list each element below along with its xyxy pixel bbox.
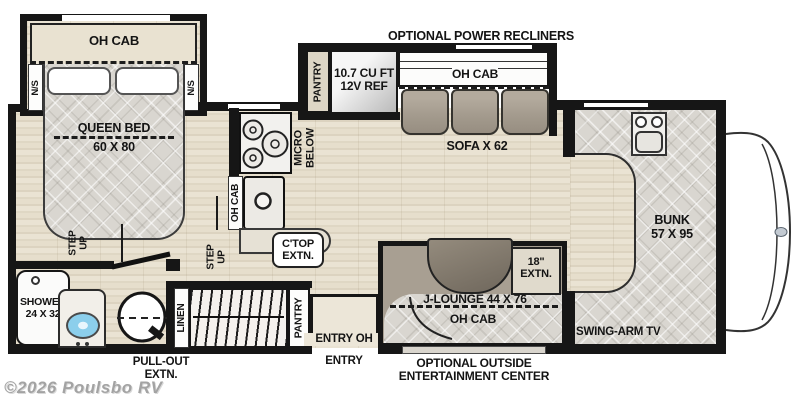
bedroom-step-up-label: STEPUP bbox=[69, 230, 90, 255]
lav-sink bbox=[66, 312, 100, 339]
jlounge-ohcab-label: OH CAB bbox=[428, 313, 518, 326]
micro-below: MICROBELOW bbox=[290, 116, 320, 180]
sofa-slide-left-wall bbox=[298, 43, 306, 116]
slide-pantry-label: PANTRY bbox=[312, 61, 323, 102]
nightstand-left: N/S bbox=[28, 64, 43, 111]
hall-step-up: STEPUP bbox=[204, 230, 230, 284]
cab-brand-badge bbox=[775, 228, 787, 237]
wall-under-fridge bbox=[298, 112, 400, 120]
entry-label: ENTRY bbox=[310, 355, 378, 368]
swing-arm-tv-label: SWING-ARM TV bbox=[576, 326, 670, 339]
wardrobe bbox=[189, 288, 288, 348]
refrigerator-label: 10.7 CU FT12V REF bbox=[330, 67, 398, 94]
range bbox=[239, 112, 292, 174]
sofa-cushion-1 bbox=[401, 89, 449, 135]
sofa-ohcab-label: OH CAB bbox=[452, 68, 498, 81]
queen-bed-label: QUEEN BED bbox=[58, 121, 170, 135]
bunk-label: BUNK57 X 95 bbox=[640, 213, 704, 241]
ctop-extn-label: C'TOPEXTN. bbox=[272, 238, 324, 263]
sofa-slide-right-wall bbox=[549, 43, 557, 136]
sofa-slide-window bbox=[456, 45, 532, 49]
kitchen-divider-wall bbox=[229, 108, 239, 176]
kitchen-ohcab: OH CAB bbox=[228, 176, 243, 230]
sofa-cushion-3 bbox=[501, 89, 549, 135]
linen-closet: LINEN bbox=[174, 288, 189, 348]
cab-hood-inner-line bbox=[762, 144, 777, 320]
linen-label: LINEN bbox=[176, 303, 187, 332]
sofa-label: SOFA X 62 bbox=[432, 139, 522, 153]
nightstand-left-label: N/S bbox=[31, 80, 41, 95]
jlounge-label: J-LOUNGE 44 X 76 bbox=[400, 293, 550, 306]
entry-oh-label: ENTRY OH bbox=[304, 333, 384, 346]
jlounge-extn-label: 18"EXTN. bbox=[511, 256, 561, 281]
nightstand-right-label: N/S bbox=[187, 80, 197, 95]
bed-dashed-line bbox=[54, 136, 174, 139]
outside-entertainment-label: OPTIONAL OUTSIDEENTERTAINMENT CENTER bbox=[384, 357, 564, 384]
front-window bbox=[584, 103, 648, 107]
cab-wall-upper bbox=[563, 100, 575, 157]
hall-pantry-label: PANTRY bbox=[293, 298, 304, 339]
rv-floorplan: OH CAB N/S N/S QUEEN BED 60 X 80 OH CAB … bbox=[0, 0, 800, 400]
bedroom-ohcab-label: OH CAB bbox=[70, 34, 158, 49]
micro-below-label: MICROBELOW bbox=[293, 128, 316, 168]
outside-entertainment-panel bbox=[402, 346, 546, 354]
wardrobe-rod bbox=[193, 316, 284, 318]
bedroom-window bbox=[62, 15, 170, 21]
closet-top-wall bbox=[166, 281, 312, 288]
slide-pantry: PANTRY bbox=[306, 50, 330, 113]
front-sink-knob-right bbox=[651, 116, 663, 128]
bath-door-wall bbox=[16, 261, 114, 269]
front-sink-basin bbox=[635, 131, 663, 153]
nightstand-right: N/S bbox=[184, 64, 199, 111]
bedroom-step-up: STEPUP bbox=[66, 222, 92, 264]
shower-drain bbox=[31, 276, 40, 285]
left-wall bbox=[8, 104, 16, 348]
pillow-right bbox=[115, 67, 179, 95]
hall-step-up-label: STEPUP bbox=[207, 244, 228, 269]
bath-linen-wall bbox=[166, 281, 174, 348]
right-wall bbox=[716, 100, 726, 350]
kitchen-ohcab-label: OH CAB bbox=[230, 184, 241, 222]
watermark: ©2026 Poulsbo RV bbox=[4, 378, 162, 398]
cab-walkway bbox=[570, 153, 636, 293]
power-recliners-label: OPTIONAL POWER RECLINERS bbox=[388, 29, 560, 43]
cab-hood-outline bbox=[726, 133, 790, 331]
pillow-left bbox=[47, 67, 111, 95]
top-left-wall-stub bbox=[8, 104, 24, 112]
queen-bed-size: 60 X 80 bbox=[58, 140, 170, 154]
bath-door-hinge bbox=[166, 259, 180, 271]
front-sink-knob-left bbox=[635, 116, 647, 128]
kitchen-sink bbox=[243, 176, 285, 230]
sofa-cushion-2 bbox=[451, 89, 499, 135]
